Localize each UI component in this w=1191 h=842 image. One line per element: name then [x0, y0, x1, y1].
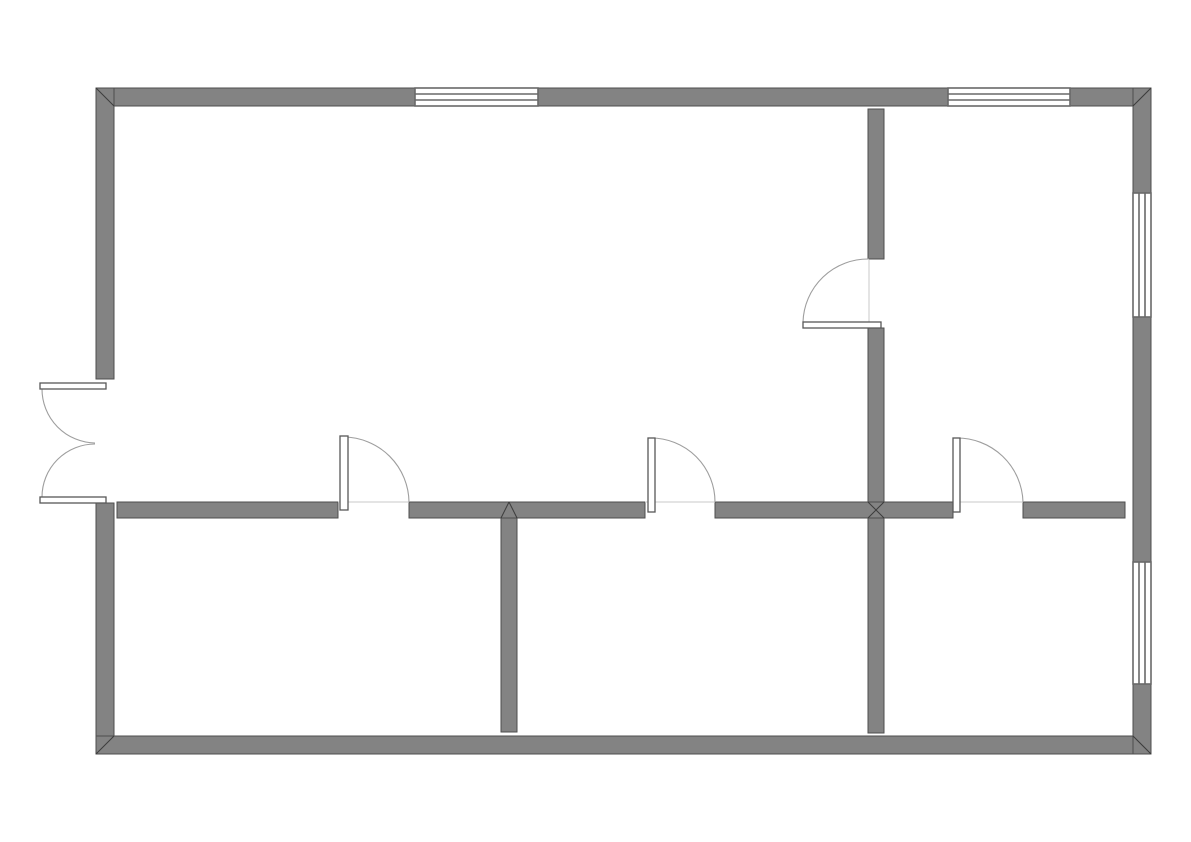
- interior-wall-vertical-right-upper: [868, 109, 884, 259]
- entry-double-door-bottom-leaf-leaf: [40, 497, 106, 503]
- window-top-right-frame: [948, 88, 1070, 106]
- interior-wall-horizontal-1: [117, 502, 338, 518]
- interior-wall-vertical-right-mid: [868, 328, 884, 502]
- door-bottom-right-room-leaf: [953, 438, 960, 512]
- door-bottom-right-room: [953, 438, 1023, 512]
- window-right-upper-frame: [1133, 193, 1151, 317]
- interior-wall-vertical-right-lower: [868, 518, 884, 733]
- miters-layer: [96, 88, 1151, 754]
- entry-double-door-top-leaf-leaf: [40, 383, 106, 389]
- window-right-upper: [1133, 193, 1151, 317]
- entry-double-door-top-leaf: [40, 383, 106, 443]
- window-right-lower: [1133, 562, 1151, 684]
- exterior-wall-right-middle: [1133, 317, 1151, 562]
- windows-layer: [415, 88, 1151, 684]
- exterior-wall-bottom: [96, 736, 1151, 754]
- window-top-left: [415, 88, 538, 106]
- window-right-lower-frame: [1133, 562, 1151, 684]
- door-bottom-middle-room-leaf: [648, 438, 655, 512]
- window-top-left-frame: [415, 88, 538, 106]
- floor-plan-canvas: [0, 0, 1191, 842]
- interior-wall-vertical-left: [501, 518, 517, 732]
- interior-wall-horizontal-2: [409, 502, 645, 518]
- door-bottom-middle-room: [645, 438, 715, 512]
- door-bottom-left-room-swing-arc: [344, 437, 409, 502]
- door-bottom-middle-room-swing-arc: [651, 438, 715, 502]
- door-top-right-room-swing-arc: [803, 259, 869, 322]
- door-top-right-room-leaf: [803, 322, 881, 328]
- exterior-wall-right-lower: [1133, 684, 1151, 754]
- interior-wall-horizontal-4: [1023, 502, 1125, 518]
- exterior-wall-top-left: [96, 88, 415, 106]
- exterior-wall-top-middle: [538, 88, 948, 106]
- interior-wall-horizontal-3: [715, 502, 953, 518]
- exterior-wall-left-lower: [96, 503, 114, 754]
- window-top-right: [948, 88, 1070, 106]
- door-top-right-room: [803, 259, 881, 328]
- entry-double-door-bottom-leaf: [40, 444, 106, 503]
- walls-layer: [96, 88, 1151, 754]
- exterior-wall-left-upper: [96, 88, 114, 379]
- door-bottom-left-room-leaf: [340, 436, 348, 510]
- door-bottom-right-room-swing-arc: [956, 438, 1023, 502]
- door-bottom-left-room: [338, 436, 409, 510]
- entry-double-door-top-leaf-swing-arc: [42, 389, 95, 443]
- floor-plan-page: [0, 0, 1191, 842]
- entry-double-door-bottom-leaf-swing-arc: [42, 444, 95, 497]
